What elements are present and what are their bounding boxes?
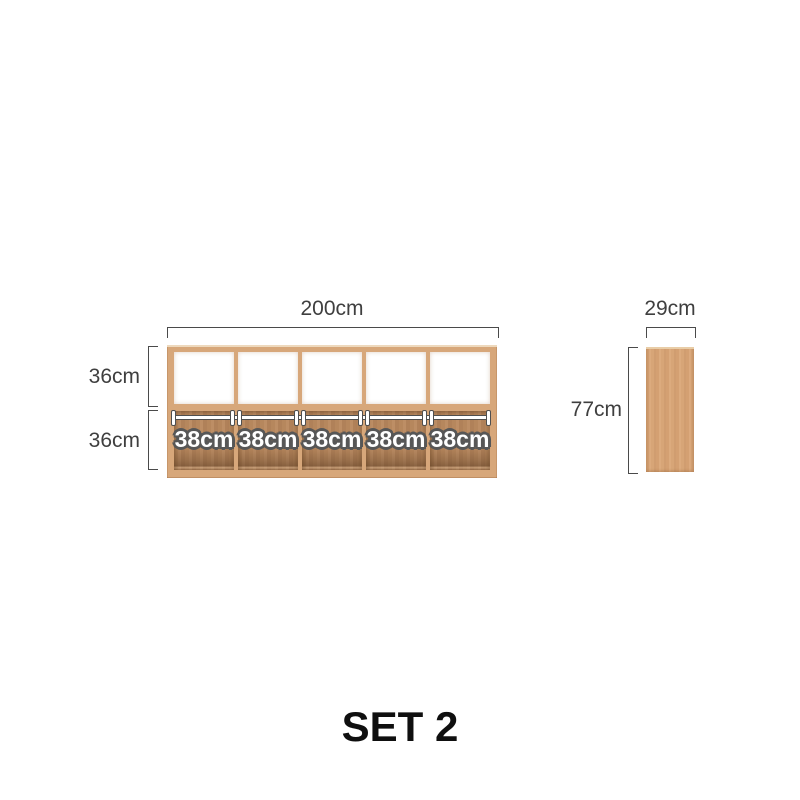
measure-tick [422, 410, 427, 426]
shelf-cell-open [238, 352, 298, 404]
measure-tick [237, 410, 242, 426]
side-width-label: 29cm [610, 297, 730, 321]
measure-tick [171, 410, 176, 426]
cell-width-measure-line [172, 415, 490, 420]
shelf-cell-open [430, 352, 490, 404]
side-height-label: 77cm [540, 398, 622, 422]
shelf-cell-open [366, 352, 426, 404]
side-height-bracket [628, 347, 638, 474]
measure-tick [429, 410, 434, 426]
measure-tick [358, 410, 363, 426]
measure-tick [486, 410, 491, 426]
front-row2-height-bracket [148, 410, 158, 470]
measure-tick [294, 410, 299, 426]
front-width-label: 200cm [272, 297, 392, 321]
side-panel-view [646, 347, 694, 472]
product-dimension-diagram: 200cm 36cm 36cm 38cm 38cm 38cm 38cm [0, 0, 800, 800]
measure-tick [230, 410, 235, 426]
side-width-bracket [646, 327, 696, 338]
shelf-top-row [174, 352, 490, 404]
front-row1-height-label: 36cm [58, 365, 140, 389]
shelf-cell-open [174, 352, 234, 404]
measure-tick [365, 410, 370, 426]
front-row1-height-bracket [148, 346, 158, 407]
front-row2-height-label: 36cm [58, 429, 140, 453]
shelf-cell-open [302, 352, 362, 404]
shelf-front-view [167, 345, 497, 478]
cell-width-label: 38cm [420, 426, 500, 453]
set-caption: SET 2 [0, 703, 800, 751]
front-width-bracket [167, 327, 499, 338]
measure-tick [301, 410, 306, 426]
